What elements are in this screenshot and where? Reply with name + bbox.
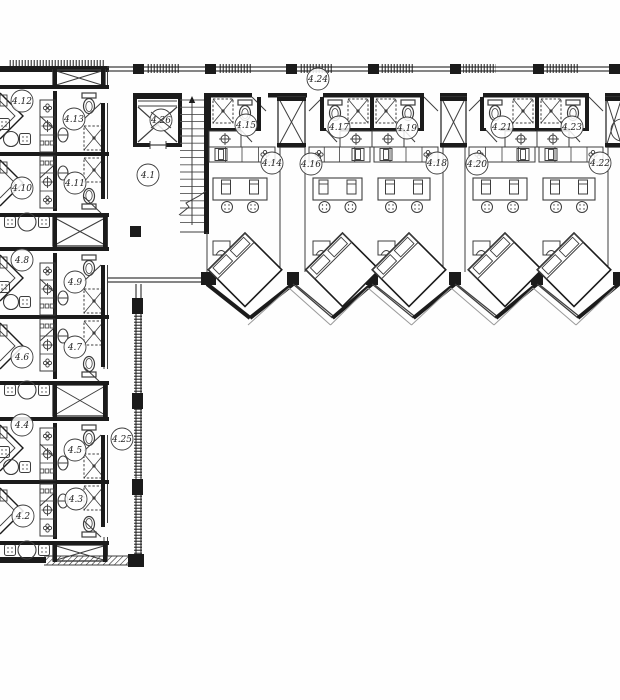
svg-text:4.6: 4.6 (14, 353, 30, 363)
washbasin-icon (58, 291, 68, 305)
svg-text:4.21: 4.21 (491, 123, 512, 133)
stool-icon (319, 202, 330, 213)
sink-faucet-icon (350, 133, 362, 145)
stool-icon (20, 462, 31, 473)
room-label-4-5: 4.5 (64, 439, 86, 461)
svg-text:4.13: 4.13 (63, 115, 84, 125)
svg-text:4.22: 4.22 (589, 159, 610, 169)
toilet-icon (82, 357, 96, 378)
room-label-4-25: 4.25 (111, 428, 133, 450)
sink-faucet-icon (219, 133, 231, 145)
room-label-4-9: 4.9 (64, 271, 86, 293)
sink-faucet-icon (42, 504, 54, 516)
room-label-4-16: 4.16 (300, 153, 322, 175)
room-label-4-20: 4.20 (466, 153, 488, 175)
svg-text:4.9: 4.9 (67, 278, 83, 288)
room-label-4-10: 4.10 (11, 177, 33, 199)
room-label-4-21: 4.21 (491, 116, 513, 138)
svg-text:4.26: 4.26 (150, 116, 171, 126)
washbasin-icon (58, 456, 68, 470)
chair-icon (347, 180, 356, 194)
cooktop-icon (43, 196, 51, 204)
shower-icon (348, 99, 368, 123)
svg-text:4.11: 4.11 (64, 179, 85, 189)
stool-icon (5, 385, 16, 396)
room-label-4-23: 4.23 (561, 116, 583, 138)
stool-icon (412, 202, 423, 213)
cooktop-icon (43, 524, 51, 532)
stool-icon (39, 545, 50, 556)
svg-text:4.2: 4.2 (15, 512, 31, 522)
floor-plan-svg: 4.14.24.34.44.54.64.74.84.94.104.114.124… (0, 0, 620, 700)
svg-text:4.24: 4.24 (307, 75, 328, 85)
stool-icon (482, 202, 493, 213)
stool-icon (248, 202, 259, 213)
room-label-4-19: 4.19 (396, 117, 418, 139)
chair-icon (510, 180, 519, 194)
chair-icon (222, 180, 231, 194)
stool-icon (39, 385, 50, 396)
svg-text:4.12: 4.12 (11, 97, 32, 107)
room-label-4-12: 4.12 (11, 90, 33, 112)
chair-icon (386, 180, 395, 194)
stool-icon (222, 202, 233, 213)
stool-icon (508, 202, 519, 213)
svg-text:4.14: 4.14 (261, 159, 282, 169)
floor-plan: 4.14.24.34.44.54.64.74.84.94.104.114.124… (0, 0, 620, 700)
room-label-4-18: 4.18 (426, 152, 448, 174)
svg-text:4.10: 4.10 (11, 184, 32, 194)
svg-text:4.1: 4.1 (140, 171, 155, 181)
shower-icon (513, 99, 533, 123)
stairwell (179, 93, 209, 234)
toilet-icon (82, 255, 96, 276)
svg-text:4.20: 4.20 (466, 160, 487, 170)
room-label-4-14: 4.14 (261, 152, 283, 174)
cooktop-icon (43, 104, 51, 112)
bed-icon (306, 233, 380, 307)
cooktop-icon (43, 359, 51, 367)
room-label-4-17: 4.17 (328, 116, 350, 138)
room-label-4-24: 4.24 (307, 68, 329, 90)
cooktop-icon (43, 432, 51, 440)
sink-faucet-icon (42, 283, 54, 295)
sink-faucet-icon (547, 133, 559, 145)
stool-icon (5, 217, 16, 228)
stool-icon (20, 134, 31, 145)
shower-icon (213, 99, 233, 123)
stool-icon (577, 202, 588, 213)
chair-icon (250, 180, 259, 194)
washbasin-icon (58, 128, 68, 142)
bed-icon (537, 233, 611, 307)
sink-faucet-icon (42, 448, 54, 460)
toilet-icon (82, 93, 96, 114)
room-label-4-15: 4.15 (235, 114, 257, 136)
chair-icon (579, 180, 588, 194)
toilet-icon (82, 517, 96, 538)
stool-icon (386, 202, 397, 213)
svg-text:4.5: 4.5 (67, 446, 83, 456)
rooms-left-wing (0, 85, 109, 559)
shower-icon (376, 99, 396, 123)
sink-faucet-icon (382, 133, 394, 145)
room-label-4-7: 4.7 (64, 336, 86, 358)
svg-text:4.18: 4.18 (426, 159, 447, 169)
stool-icon (5, 545, 16, 556)
cooktop-icon (43, 267, 51, 275)
room-label-4-4: 4.4 (11, 414, 33, 436)
room-label-4-26: 4.26 (150, 109, 172, 131)
room-label-4-3: 4.3 (65, 488, 87, 510)
stool-icon (0, 447, 10, 458)
stool-icon (345, 202, 356, 213)
stool-icon (551, 202, 562, 213)
chair-icon (319, 180, 328, 194)
svg-text:4.8: 4.8 (14, 256, 30, 266)
svg-text:4.16: 4.16 (300, 160, 321, 170)
svg-text:4.17: 4.17 (328, 123, 349, 133)
stool-icon (0, 282, 10, 293)
chair-icon (551, 180, 560, 194)
svg-text:4.3: 4.3 (68, 495, 84, 505)
room-label-4-6: 4.6 (11, 346, 33, 368)
room-label-4-8: 4.8 (11, 249, 33, 271)
svg-text:4.15: 4.15 (235, 121, 256, 131)
sink-faucet-icon (42, 120, 54, 132)
room-label-4-2: 4.2 (12, 505, 34, 527)
chair-icon (414, 180, 423, 194)
svg-text:4.19: 4.19 (396, 124, 417, 134)
stool-icon (0, 119, 10, 130)
sink-faucet-icon (42, 176, 54, 188)
room-label-4-11: 4.11 (64, 172, 86, 194)
chair-icon (482, 180, 491, 194)
sink-faucet-icon (515, 133, 527, 145)
shower-icon (541, 99, 561, 123)
toilet-icon (82, 425, 96, 446)
room-label-4-13: 4.13 (63, 108, 85, 130)
room-label-4-22: 4.22 (589, 152, 611, 174)
svg-text:4.4: 4.4 (14, 421, 30, 431)
sink-faucet-icon (42, 339, 54, 351)
stool-icon (39, 217, 50, 228)
bed-icon (372, 233, 446, 307)
stool-icon (20, 297, 31, 308)
room-label-4-1: 4.1 (137, 164, 159, 186)
svg-text:4.7: 4.7 (67, 343, 83, 353)
svg-text:4.25: 4.25 (111, 435, 132, 445)
fridge-icon (352, 149, 364, 161)
svg-text:4.23: 4.23 (561, 123, 582, 133)
bed-icon (468, 233, 542, 307)
